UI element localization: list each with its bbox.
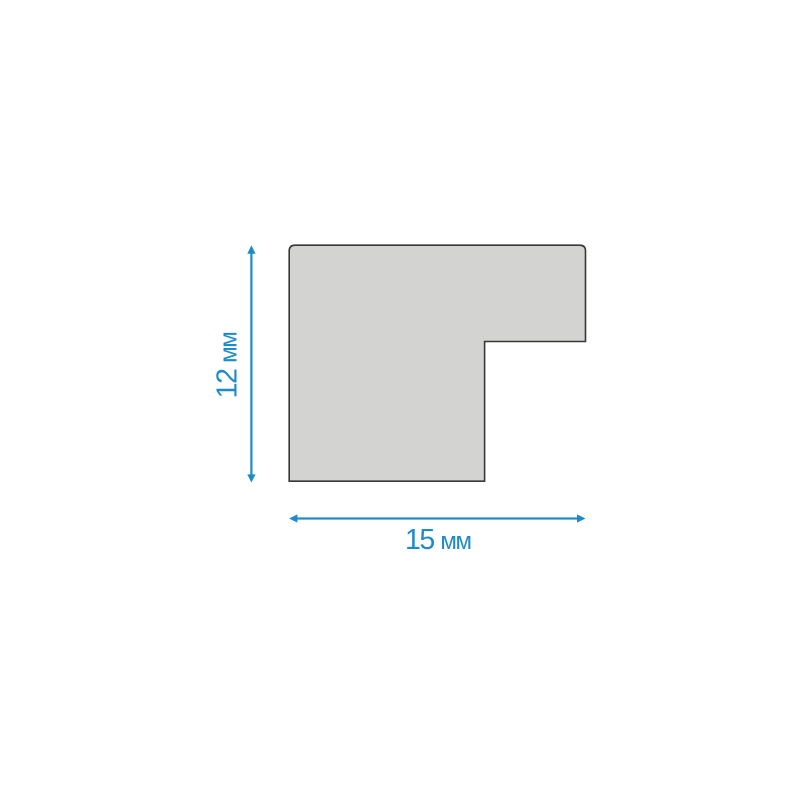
svg-text:15 мм: 15 мм xyxy=(405,524,471,556)
svg-text:12 мм: 12 мм xyxy=(212,333,244,399)
